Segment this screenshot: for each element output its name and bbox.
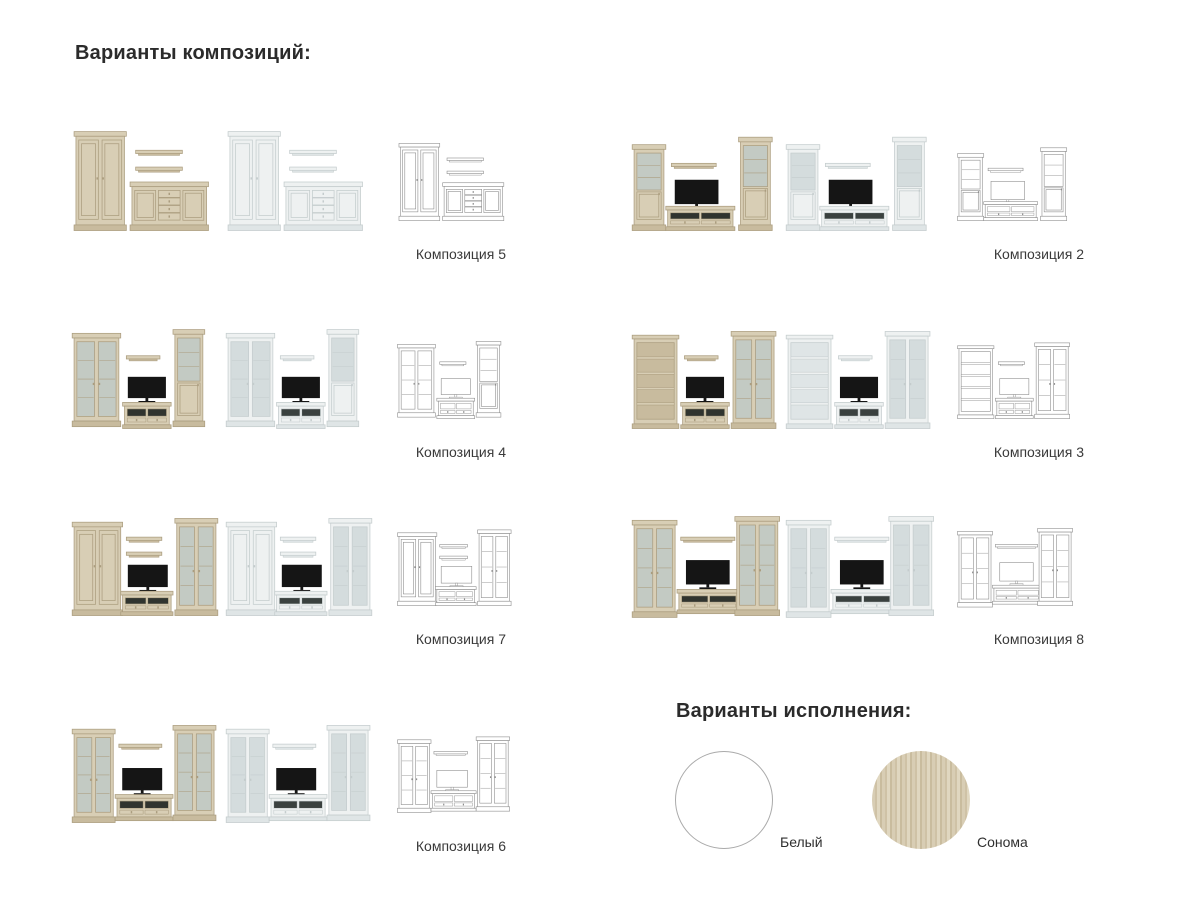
composition-renders [630,318,1090,436]
composition-renders [630,120,1090,238]
render-sonoma [70,124,220,238]
composition-group: Композиция 2 [630,120,1090,270]
render-white [224,124,374,238]
render-wireframe [378,716,528,830]
composition-label: Композиция 3 [630,444,1090,460]
finishes-heading: Варианты исполнения: [676,700,912,723]
composition-group: Композиция 6 [70,712,530,862]
composition-label: Композиция 4 [70,444,530,460]
composition-renders [70,505,530,623]
sonoma-finish-swatch [872,751,970,849]
catalog-page: Варианты композиций: Композиция 5 Композ… [0,0,1200,900]
render-wireframe [378,124,528,238]
composition-label: Композиция 6 [70,838,530,854]
render-white [784,124,934,238]
render-white [784,509,934,623]
composition-label: Композиция 7 [70,631,530,647]
render-wireframe [938,322,1088,436]
render-white [224,509,374,623]
sonoma-finish-label: Сонома [977,834,1028,850]
finish-white [675,751,773,849]
composition-renders [630,505,1090,623]
composition-group: Композиция 5 [70,120,530,270]
render-sonoma [630,322,780,436]
composition-label: Композиция 8 [630,631,1090,647]
render-sonoma [630,509,780,623]
composition-renders [70,712,530,830]
white-finish-swatch [675,751,773,849]
composition-group: Композиция 3 [630,318,1090,468]
render-white [224,322,374,436]
render-sonoma [70,322,220,436]
white-finish-label: Белый [780,834,823,850]
render-wireframe [378,509,528,623]
composition-group: Композиция 4 [70,318,530,468]
render-white [224,716,374,830]
composition-label: Композиция 2 [630,246,1090,262]
composition-renders [70,120,530,238]
render-wireframe [378,322,528,436]
render-wireframe [938,124,1088,238]
composition-group: Композиция 7 [70,505,530,655]
composition-group: Композиция 8 [630,505,1090,655]
render-wireframe [938,509,1088,623]
finish-sonoma [872,751,970,849]
composition-renders [70,318,530,436]
render-sonoma [70,716,220,830]
render-sonoma [70,509,220,623]
compositions-heading: Варианты композиций: [75,42,311,65]
composition-label: Композиция 5 [70,246,530,262]
render-sonoma [630,124,780,238]
render-white [784,322,934,436]
